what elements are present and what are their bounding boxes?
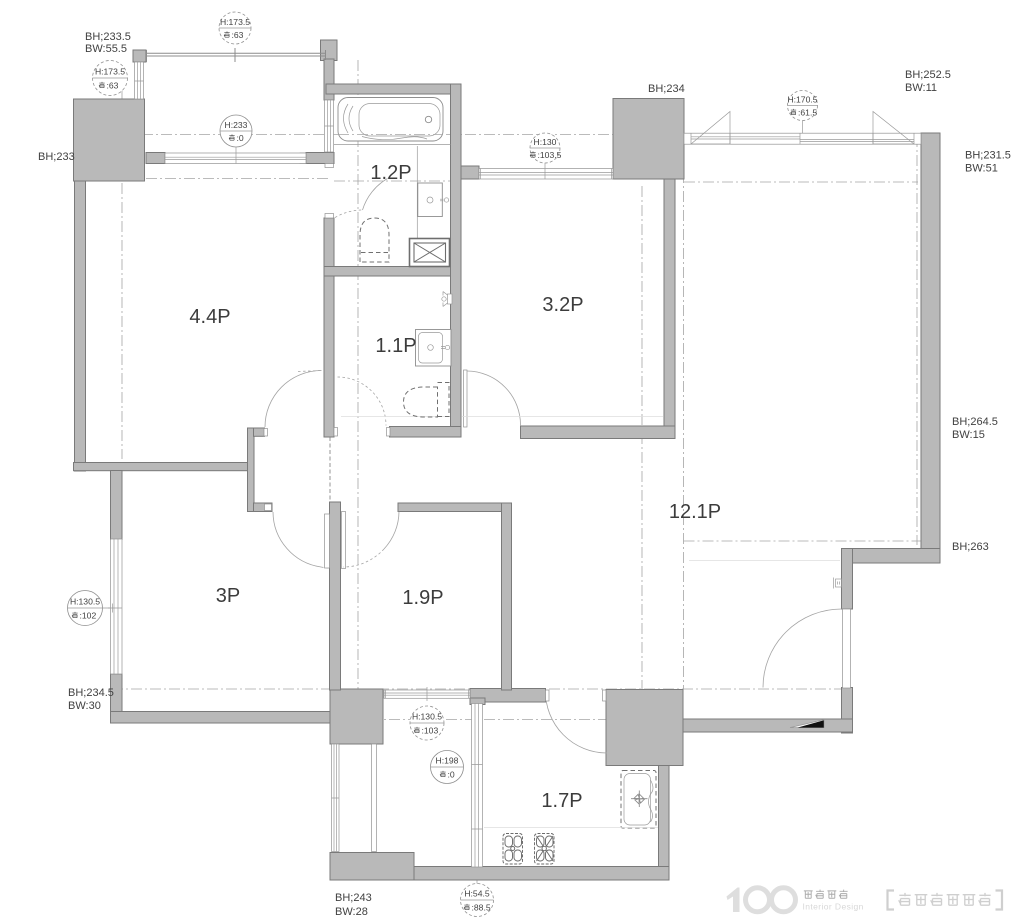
svg-text:1.7P: 1.7P — [541, 790, 582, 812]
svg-text::103.5: :103.5 — [538, 150, 562, 160]
svg-text:BW:30: BW:30 — [68, 700, 101, 712]
svg-text:1.1P: 1.1P — [375, 335, 416, 357]
svg-text:BH;264.5: BH;264.5 — [952, 416, 998, 428]
svg-text:12.1P: 12.1P — [669, 501, 721, 523]
svg-text:BH;234.5: BH;234.5 — [68, 687, 114, 699]
svg-text:H:54.5: H:54.5 — [464, 889, 490, 899]
svg-text::0: :0 — [448, 770, 455, 780]
svg-text::88.5: :88.5 — [472, 903, 491, 913]
svg-text:H:233: H:233 — [225, 120, 248, 130]
svg-text:BW:51: BW:51 — [965, 163, 998, 175]
svg-text:BW:28: BW:28 — [335, 906, 368, 918]
svg-text:Interior Design: Interior Design — [803, 902, 864, 912]
svg-text::61.5: :61.5 — [798, 108, 817, 118]
svg-text::0: :0 — [237, 133, 244, 143]
svg-text:BW:11: BW:11 — [905, 82, 937, 94]
svg-text:3.2P: 3.2P — [542, 294, 583, 316]
svg-text:3P: 3P — [216, 585, 240, 607]
svg-text:H:173.5: H:173.5 — [95, 67, 125, 77]
svg-text::63: :63 — [232, 30, 244, 40]
svg-text::102: :102 — [80, 611, 97, 621]
svg-text:BH;263: BH;263 — [952, 541, 989, 553]
svg-text:H:130: H:130 — [534, 137, 557, 147]
svg-text:BH;233.5: BH;233.5 — [85, 31, 131, 43]
svg-text:BH;231.5: BH;231.5 — [965, 150, 1011, 162]
svg-text::63: :63 — [107, 81, 119, 91]
svg-text:BH;233: BH;233 — [38, 151, 75, 163]
svg-text:BH;234: BH;234 — [648, 83, 685, 95]
svg-text:1.2P: 1.2P — [370, 162, 411, 184]
svg-text:H:130.5: H:130.5 — [412, 712, 442, 722]
svg-text:BW:55.5: BW:55.5 — [85, 43, 127, 55]
svg-text:H:198: H:198 — [436, 756, 459, 766]
svg-text:BW:15: BW:15 — [952, 429, 985, 441]
svg-text:BH;243: BH;243 — [335, 892, 372, 904]
svg-text:H:130.5: H:130.5 — [70, 597, 100, 607]
svg-text::103: :103 — [422, 726, 439, 736]
svg-text:4.4P: 4.4P — [189, 306, 230, 328]
svg-text:H:173.5: H:173.5 — [220, 17, 250, 27]
svg-text:H:170.5: H:170.5 — [787, 95, 817, 105]
svg-text:1.9P: 1.9P — [402, 587, 443, 609]
svg-text:BH;252.5: BH;252.5 — [905, 69, 951, 81]
